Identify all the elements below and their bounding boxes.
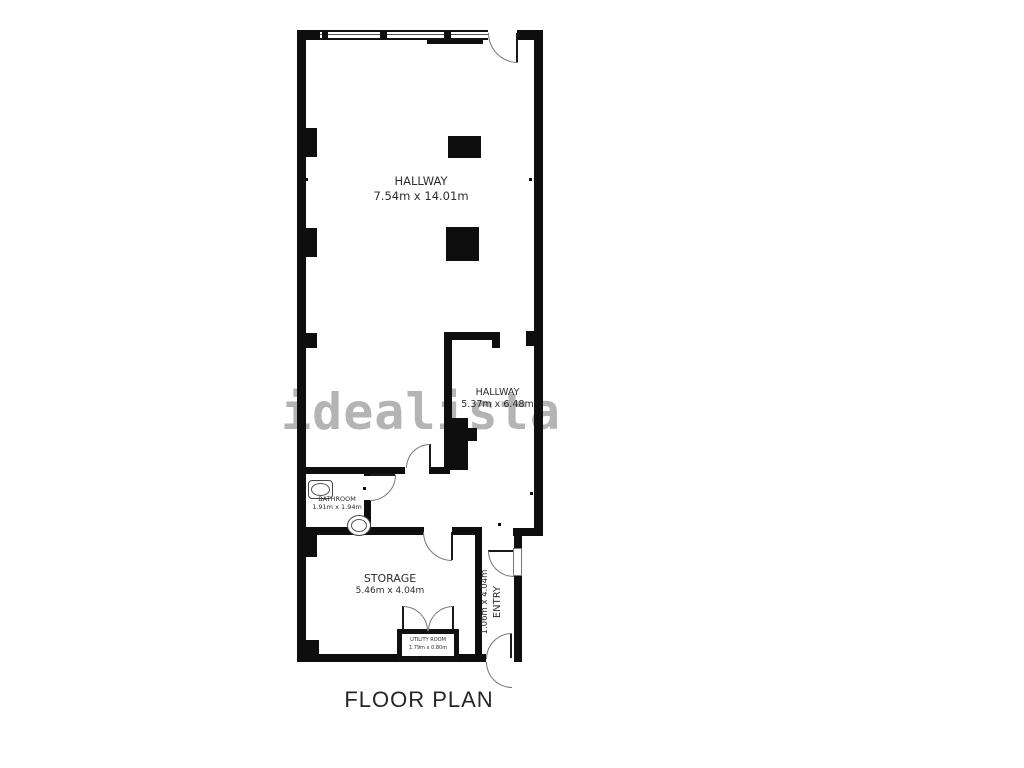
room-label-bathroom: BATHROOM 1.91m x 1.94m [299,495,375,512]
window-mullion [322,30,328,40]
wall-segment [297,467,405,474]
pillar [526,331,535,346]
room-name: HALLWAY [341,174,501,189]
window-inner-line [320,34,488,35]
wall-segment [468,428,477,441]
window-mullion [444,30,451,40]
toilet-seat [351,519,367,532]
door-arc [486,662,512,688]
wall-segment [297,30,320,40]
room-dims: 1.91m x 1.94m [299,503,375,511]
wall-tick [339,530,342,533]
door-arc [403,606,428,631]
wall-tick [530,492,533,495]
room-name: ENTRY [491,552,504,652]
pillar [305,228,317,257]
room-name: HALLWAY [440,387,555,399]
door-arc [488,33,518,63]
pillar [305,333,317,348]
door-arc [428,606,453,631]
wall-segment [492,332,500,348]
room-label-storage: STORAGE 5.46m x 4.04m [310,572,470,598]
floor-plan-canvas: idealista [0,0,1024,768]
wall-segment [534,30,543,536]
pillar [305,128,317,157]
room-dims: 1.06m x 4.04m [480,552,491,652]
wall-segment [514,536,522,548]
wall-tick [498,523,501,526]
wall-segment [514,576,522,662]
wall-tick [363,487,366,490]
room-dims: 5.37m x 6.48m [440,399,555,411]
wall-tick [419,656,422,659]
wall-segment [297,640,319,662]
room-label-utility: UTILITY ROOM 1.79m x 0.80m [400,637,456,652]
page-title: FLOOR PLAN [319,687,519,713]
room-dims: 5.46m x 4.04m [310,586,470,598]
wall-segment [444,418,468,470]
beam-line [427,40,483,44]
wall-tick [356,655,359,658]
room-name: BATHROOM [299,495,375,503]
wall-tick [529,178,532,181]
room-label-hallway1: HALLWAY 7.54m x 14.01m [341,174,501,204]
door-arc [406,444,430,468]
door-arc [423,532,452,561]
window-mullion [380,30,387,40]
room-name: STORAGE [310,572,470,586]
window-band [320,30,488,40]
room-dims: 7.54m x 14.01m [341,189,501,204]
room-label-entry: 1.06m x 4.04m ENTRY [480,552,510,652]
column [448,136,481,158]
room-label-hallway2: HALLWAY 5.37m x 6.48m [440,387,555,412]
column [446,227,479,261]
room-dims: 1.79m x 0.80m [400,645,456,653]
door-frame [513,548,522,576]
wall-tick [305,178,308,181]
wall-tick [340,468,343,471]
room-name: UTILITY ROOM [400,637,456,645]
wall-segment [513,528,543,536]
